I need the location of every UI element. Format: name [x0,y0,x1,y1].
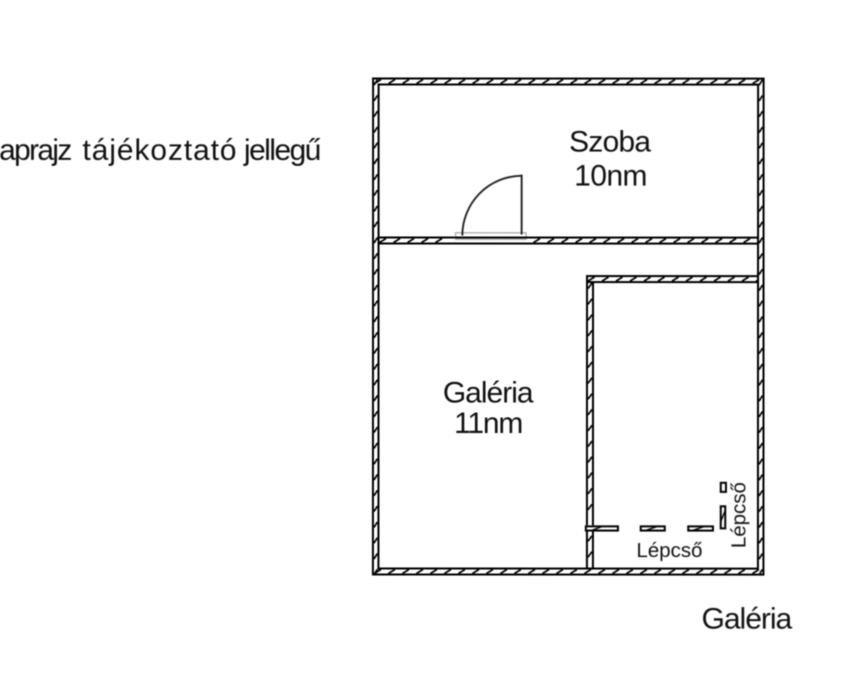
svg-text:Galéria: Galéria [702,602,793,635]
svg-text:aprajztájékoztatójellegű: aprajztájékoztatójellegű [0,134,321,167]
svg-text:Lépcső: Lépcső [727,482,750,548]
svg-text:10nm: 10nm [574,160,647,193]
svg-text:Galéria: Galéria [443,377,534,410]
svg-text:11nm: 11nm [454,407,522,440]
svg-text:Szoba: Szoba [569,126,651,159]
svg-text:Lépcső: Lépcső [636,539,702,562]
